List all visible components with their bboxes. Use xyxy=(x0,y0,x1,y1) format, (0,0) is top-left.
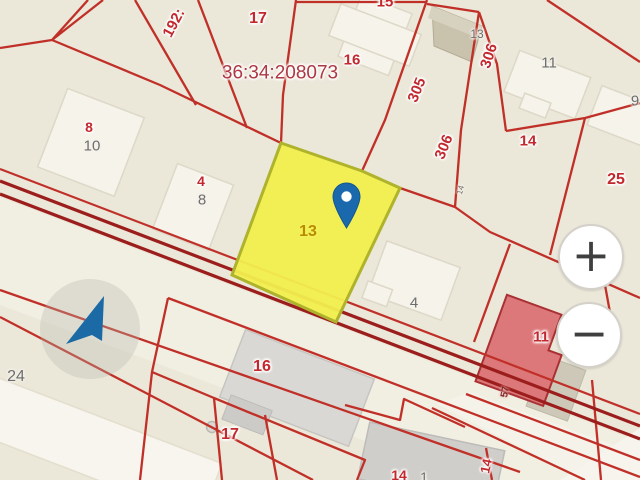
building-number-label: 9 xyxy=(631,94,639,109)
parcel-number-label: 14 xyxy=(478,458,494,475)
parcel-number-label: 17 xyxy=(221,427,239,443)
parcel-number-label: 14 xyxy=(520,134,537,149)
building-number-label: 8 xyxy=(198,193,206,208)
parcel-number-label: 11 xyxy=(533,330,549,345)
parcel-number-label: 4 xyxy=(197,174,205,188)
selected-parcel-number: 13 xyxy=(299,224,317,240)
parcel-number-label: 15 xyxy=(377,0,394,10)
building-number-label: 4 xyxy=(410,296,418,311)
building-number-label: 1 xyxy=(420,470,428,480)
building-number-label: 13 xyxy=(470,28,483,40)
building-4-8 xyxy=(152,164,233,251)
parcel-number-label: 17 xyxy=(249,11,267,27)
building-number-label: 10 xyxy=(84,139,101,154)
cadastral-map-view[interactable]: 192: 17 15 16 13 306 11 305 306 9 8 10 4… xyxy=(0,0,640,480)
zoom-out-button[interactable]: − xyxy=(556,302,622,368)
parcel-number-label: 14 xyxy=(391,468,407,480)
zoom-in-button[interactable]: + xyxy=(558,224,624,290)
cadastral-quarter-label: 36:34:208073 xyxy=(222,64,338,83)
parcel-number-label: 16 xyxy=(344,53,361,68)
parcel-number-label: 25 xyxy=(607,172,625,188)
parcel-number-label: 8 xyxy=(85,120,93,134)
parcel-number-label: 16 xyxy=(253,359,271,375)
building-number-label: 24 xyxy=(7,369,25,385)
location-indicator xyxy=(40,279,140,379)
building-number-label: 57 xyxy=(500,386,512,399)
building-cross xyxy=(323,0,427,81)
building-number-label: 11 xyxy=(541,56,557,71)
